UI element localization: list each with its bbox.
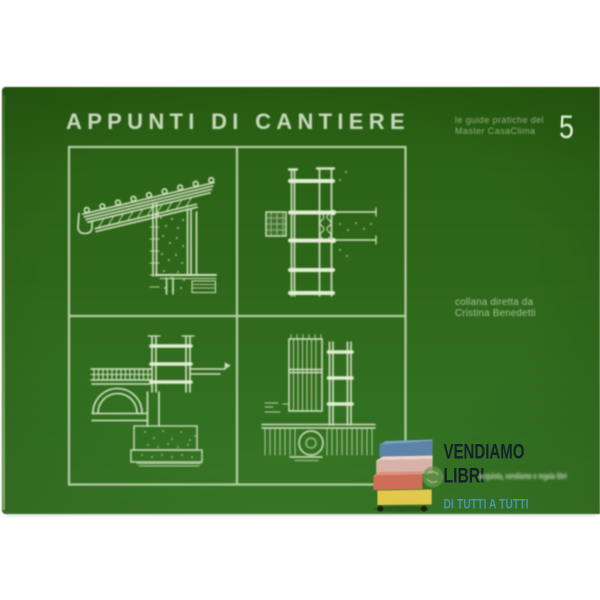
svg-text:VENDIAMO: VENDIAMO <box>444 440 525 464</box>
svg-text:DI TUTTI A TUTTI: DI TUTTI A TUTTI <box>444 497 529 512</box>
svg-text:acquista, vendiamo e regala li: acquista, vendiamo e regala libri <box>479 471 567 481</box>
